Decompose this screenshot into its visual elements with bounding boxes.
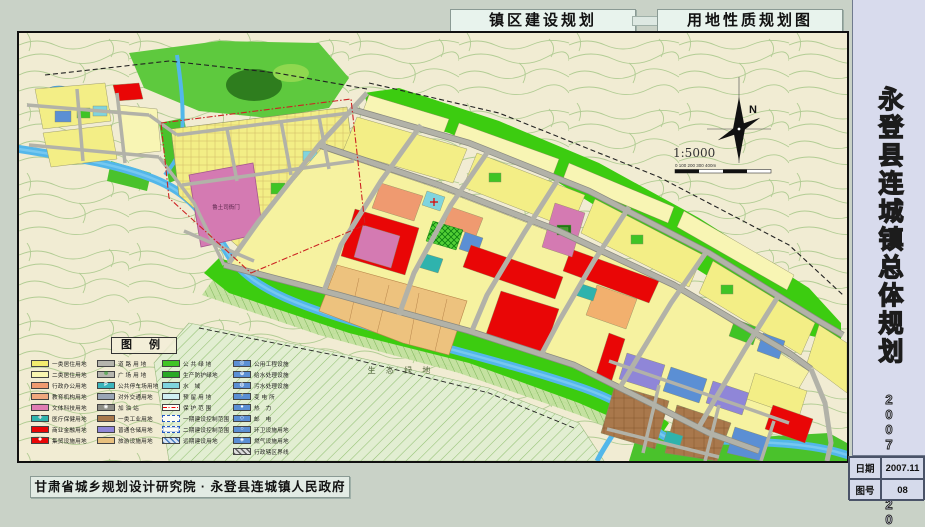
legend-item: 保 护 范 围 [162,402,228,413]
legend-item: 文体科技用地 [31,402,92,413]
legend-item-label: 二类居住用地 [52,371,87,379]
legend-symbol-icon: ✚ [32,415,48,420]
legend-item-label: 普通仓储用地 [118,426,153,434]
legend-item-label: 环卫设施用地 [254,426,289,434]
legend-item-label: 对外交通用地 [118,393,153,401]
legend-item-label: 一类居住用地 [52,360,87,368]
drawing-set-title: 永登县连城镇总体规划 [875,86,903,366]
legend-item-label: 热 力 [254,404,271,412]
legend-item-label: 行政辖区界线 [254,448,289,456]
legend-item-label: 预 留 用 地 [183,393,211,401]
legend-symbol-icon: ✹ [32,437,48,442]
legend-item: 道 路 用 地 [97,358,157,369]
legend-item: 一类居住用地 [31,358,92,369]
legend-symbol-icon: P [98,382,114,387]
legend-item: 生产防护绿地 [162,369,228,380]
sheet-number-label: 图号 [849,479,881,501]
legend-item-label: 变 电 所 [254,393,275,401]
legend-item: 一类工业用地 [97,413,157,424]
legend-item-label: 污水处理设施 [254,382,289,390]
legend-columns: 一类居住用地二类居住用地行政办公用地教育机构用地文体科技用地✚医疗保健用地商业金… [31,358,289,457]
legend-column: 道 路 用 地❉广 场 用 地P公共停车场用地对外交通用地◉加 油 站一类工业用… [97,358,157,457]
legend-item-label: 医疗保健用地 [52,415,87,423]
legend-symbol-icon: ❉ [98,371,114,376]
legend-swatch [162,382,180,389]
legend-symbol-icon: ⚡ [234,393,250,398]
legend-swatch [31,360,49,367]
eco-green-label: 生 态 绿 地 [368,365,435,375]
legend-item: 远期建设用地 [162,435,228,446]
legend-item: 公 共 绿 地 [162,358,228,369]
legend-item: 旅游设施用地 [97,435,157,446]
legend-swatch [97,426,115,433]
legend-item-label: 水 域 [183,382,200,390]
legend-symbol-icon: ○ [234,426,250,431]
legend-swatch: ◈ [233,437,251,444]
legend-swatch [31,393,49,400]
legend-item: ◍污水处理设施 [233,380,289,391]
legend-swatch [162,393,180,400]
legend-symbol-icon: ◍ [234,382,250,387]
legend-symbol-icon: ◉ [98,404,114,409]
legend-swatch: ○ [233,426,251,433]
legend-title: 图 例 [111,337,177,354]
scale-text: 1:5000 [673,146,715,160]
legend-item: ◎公用工程设施 [233,358,289,369]
legend-item-label: 教育机构用地 [52,393,87,401]
legend-swatch [31,371,49,378]
legend-item-label: 行政办公用地 [52,382,87,390]
legend-item-label: 公共停车场用地 [118,382,159,390]
legend-item-label: 商业金融用地 [52,426,87,434]
legend: 图 例 一类居住用地二类居住用地行政办公用地教育机构用地文体科技用地✚医疗保健用… [31,337,289,461]
legend-item: 行政办公用地 [31,380,92,391]
legend-item-label: 燃气设施用地 [254,437,289,445]
legend-item-label: 一期建设控制范围 [183,415,229,423]
north-label: N [749,104,757,116]
legend-swatch: ⊕ [233,371,251,378]
legend-item: 预 留 用 地 [162,391,228,402]
legend-item: ○环卫设施用地 [233,424,289,435]
legend-swatch: ✚ [31,415,49,422]
legend-column: 一类居住用地二类居住用地行政办公用地教育机构用地文体科技用地✚医疗保健用地商业金… [31,358,92,457]
plan-sheet: { "header": { "title_left": "镇区建设规划", "t… [0,0,925,500]
legend-symbol-icon: ◇ [234,415,250,420]
legend-item: 行政辖区界线 [233,446,289,457]
sheet-number-value: 08 [881,479,924,501]
historic-site-label: 鲁土司衙门 [212,203,240,211]
legend-item: ◇邮 电 [233,413,289,424]
legend-swatch [162,371,180,378]
legend-swatch [162,404,180,411]
legend-item: ◉加 油 站 [97,402,157,413]
legend-item: 二类居住用地 [31,369,92,380]
legend-symbol-icon: ⊕ [234,371,250,376]
scale-bar-labels: 0 100 200 300 400m [675,163,717,168]
credit-plate: 甘肃省城乡规划设计研究院 · 永登县连城镇人民政府 [30,476,350,498]
legend-item-label: 二期建设控制范围 [183,426,229,434]
legend-item-label: 文体科技用地 [52,404,87,412]
legend-swatch [162,426,180,433]
title-plate-left: 镇区建设规划 [450,9,636,33]
legend-swatch [97,393,115,400]
legend-column: ◎公用工程设施⊕给水处理设施◍污水处理设施⚡变 电 所●热 力◇邮 电○环卫设施… [233,358,289,457]
date-label: 日期 [849,457,881,479]
legend-swatch [31,382,49,389]
legend-item: ❉广 场 用 地 [97,369,157,380]
legend-item-label: 公用工程设施 [254,360,289,368]
legend-item-label: 公 共 绿 地 [183,360,211,368]
legend-swatch [97,360,115,367]
legend-swatch [233,448,251,455]
legend-symbol-icon: ◎ [234,360,250,365]
legend-item: ⊕给水处理设施 [233,369,289,380]
legend-swatch [162,360,180,367]
legend-swatch: ◇ [233,415,251,422]
legend-item: ✚医疗保健用地 [31,413,92,424]
legend-item: 教育机构用地 [31,391,92,402]
legend-item-label: 保 护 范 围 [183,404,211,412]
legend-item-label: 一类工业用地 [118,415,153,423]
legend-item-label: 远期建设用地 [183,437,218,445]
sidebar: 永登县连城镇总体规划 2007—2020 [852,0,925,456]
legend-item: ◈燃气设施用地 [233,435,289,446]
legend-item: 一期建设控制范围 [162,413,228,424]
legend-item-label: 加 油 站 [118,404,139,412]
legend-swatch [31,404,49,411]
sheet-info-table: 日期 2007.11 图号 08 [848,456,925,500]
legend-item-label: 生产防护绿地 [183,371,218,379]
legend-swatch: ✹ [31,437,49,444]
map-frame: N 1:5000 0 100 200 300 400m 鲁土司衙门 生 态 绿 … [17,31,849,463]
legend-swatch: ◍ [233,382,251,389]
legend-item-label: 旅游设施用地 [118,437,153,445]
legend-item: 商业金融用地 [31,424,92,435]
legend-swatch [97,437,115,444]
legend-swatch: ⚡ [233,393,251,400]
legend-symbol-icon: ● [234,404,250,409]
legend-item: 对外交通用地 [97,391,157,402]
legend-item: ✹集贸设施用地 [31,435,92,446]
legend-item-label: 集贸设施用地 [52,437,87,445]
legend-item: ⚡变 电 所 [233,391,289,402]
title-plate-right: 用地性质规划图 [657,9,843,33]
legend-swatch: ● [233,404,251,411]
legend-swatch: P [97,382,115,389]
legend-item-label: 广 场 用 地 [118,371,146,379]
legend-swatch [162,415,180,422]
legend-item-label: 邮 电 [254,415,271,423]
legend-item: ●热 力 [233,402,289,413]
legend-item-label: 道 路 用 地 [118,360,146,368]
date-value: 2007.11 [881,457,924,479]
legend-column: 公 共 绿 地生产防护绿地水 域预 留 用 地保 护 范 围一期建设控制范围二期… [162,358,228,457]
legend-item: P公共停车场用地 [97,380,157,391]
legend-swatch [97,415,115,422]
legend-swatch [162,437,180,444]
legend-swatch: ◎ [233,360,251,367]
legend-swatch [31,426,49,433]
legend-symbol-icon: ◈ [234,437,250,442]
legend-item: 普通仓储用地 [97,424,157,435]
legend-swatch: ❉ [97,371,115,378]
legend-item-label: 给水处理设施 [254,371,289,379]
legend-swatch: ◉ [97,404,115,411]
legend-item: 水 域 [162,380,228,391]
legend-item: 二期建设控制范围 [162,424,228,435]
